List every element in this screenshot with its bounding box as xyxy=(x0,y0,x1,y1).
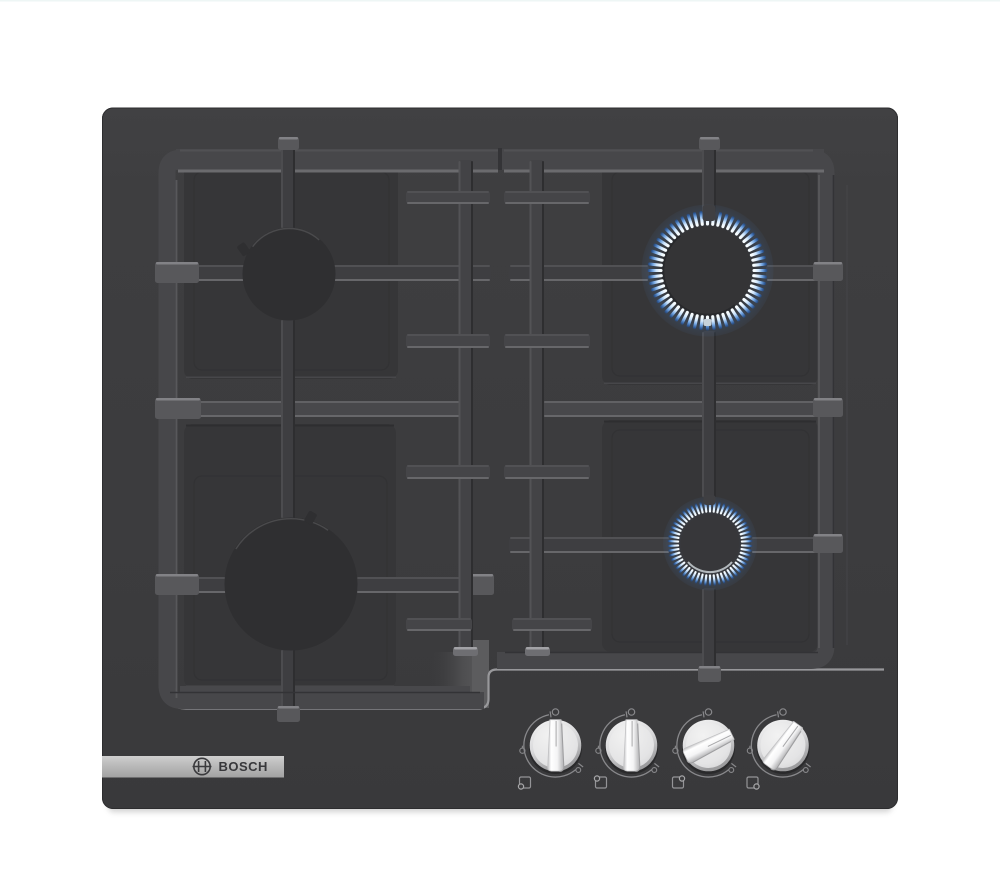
svg-text:BOSCH: BOSCH xyxy=(219,759,268,774)
